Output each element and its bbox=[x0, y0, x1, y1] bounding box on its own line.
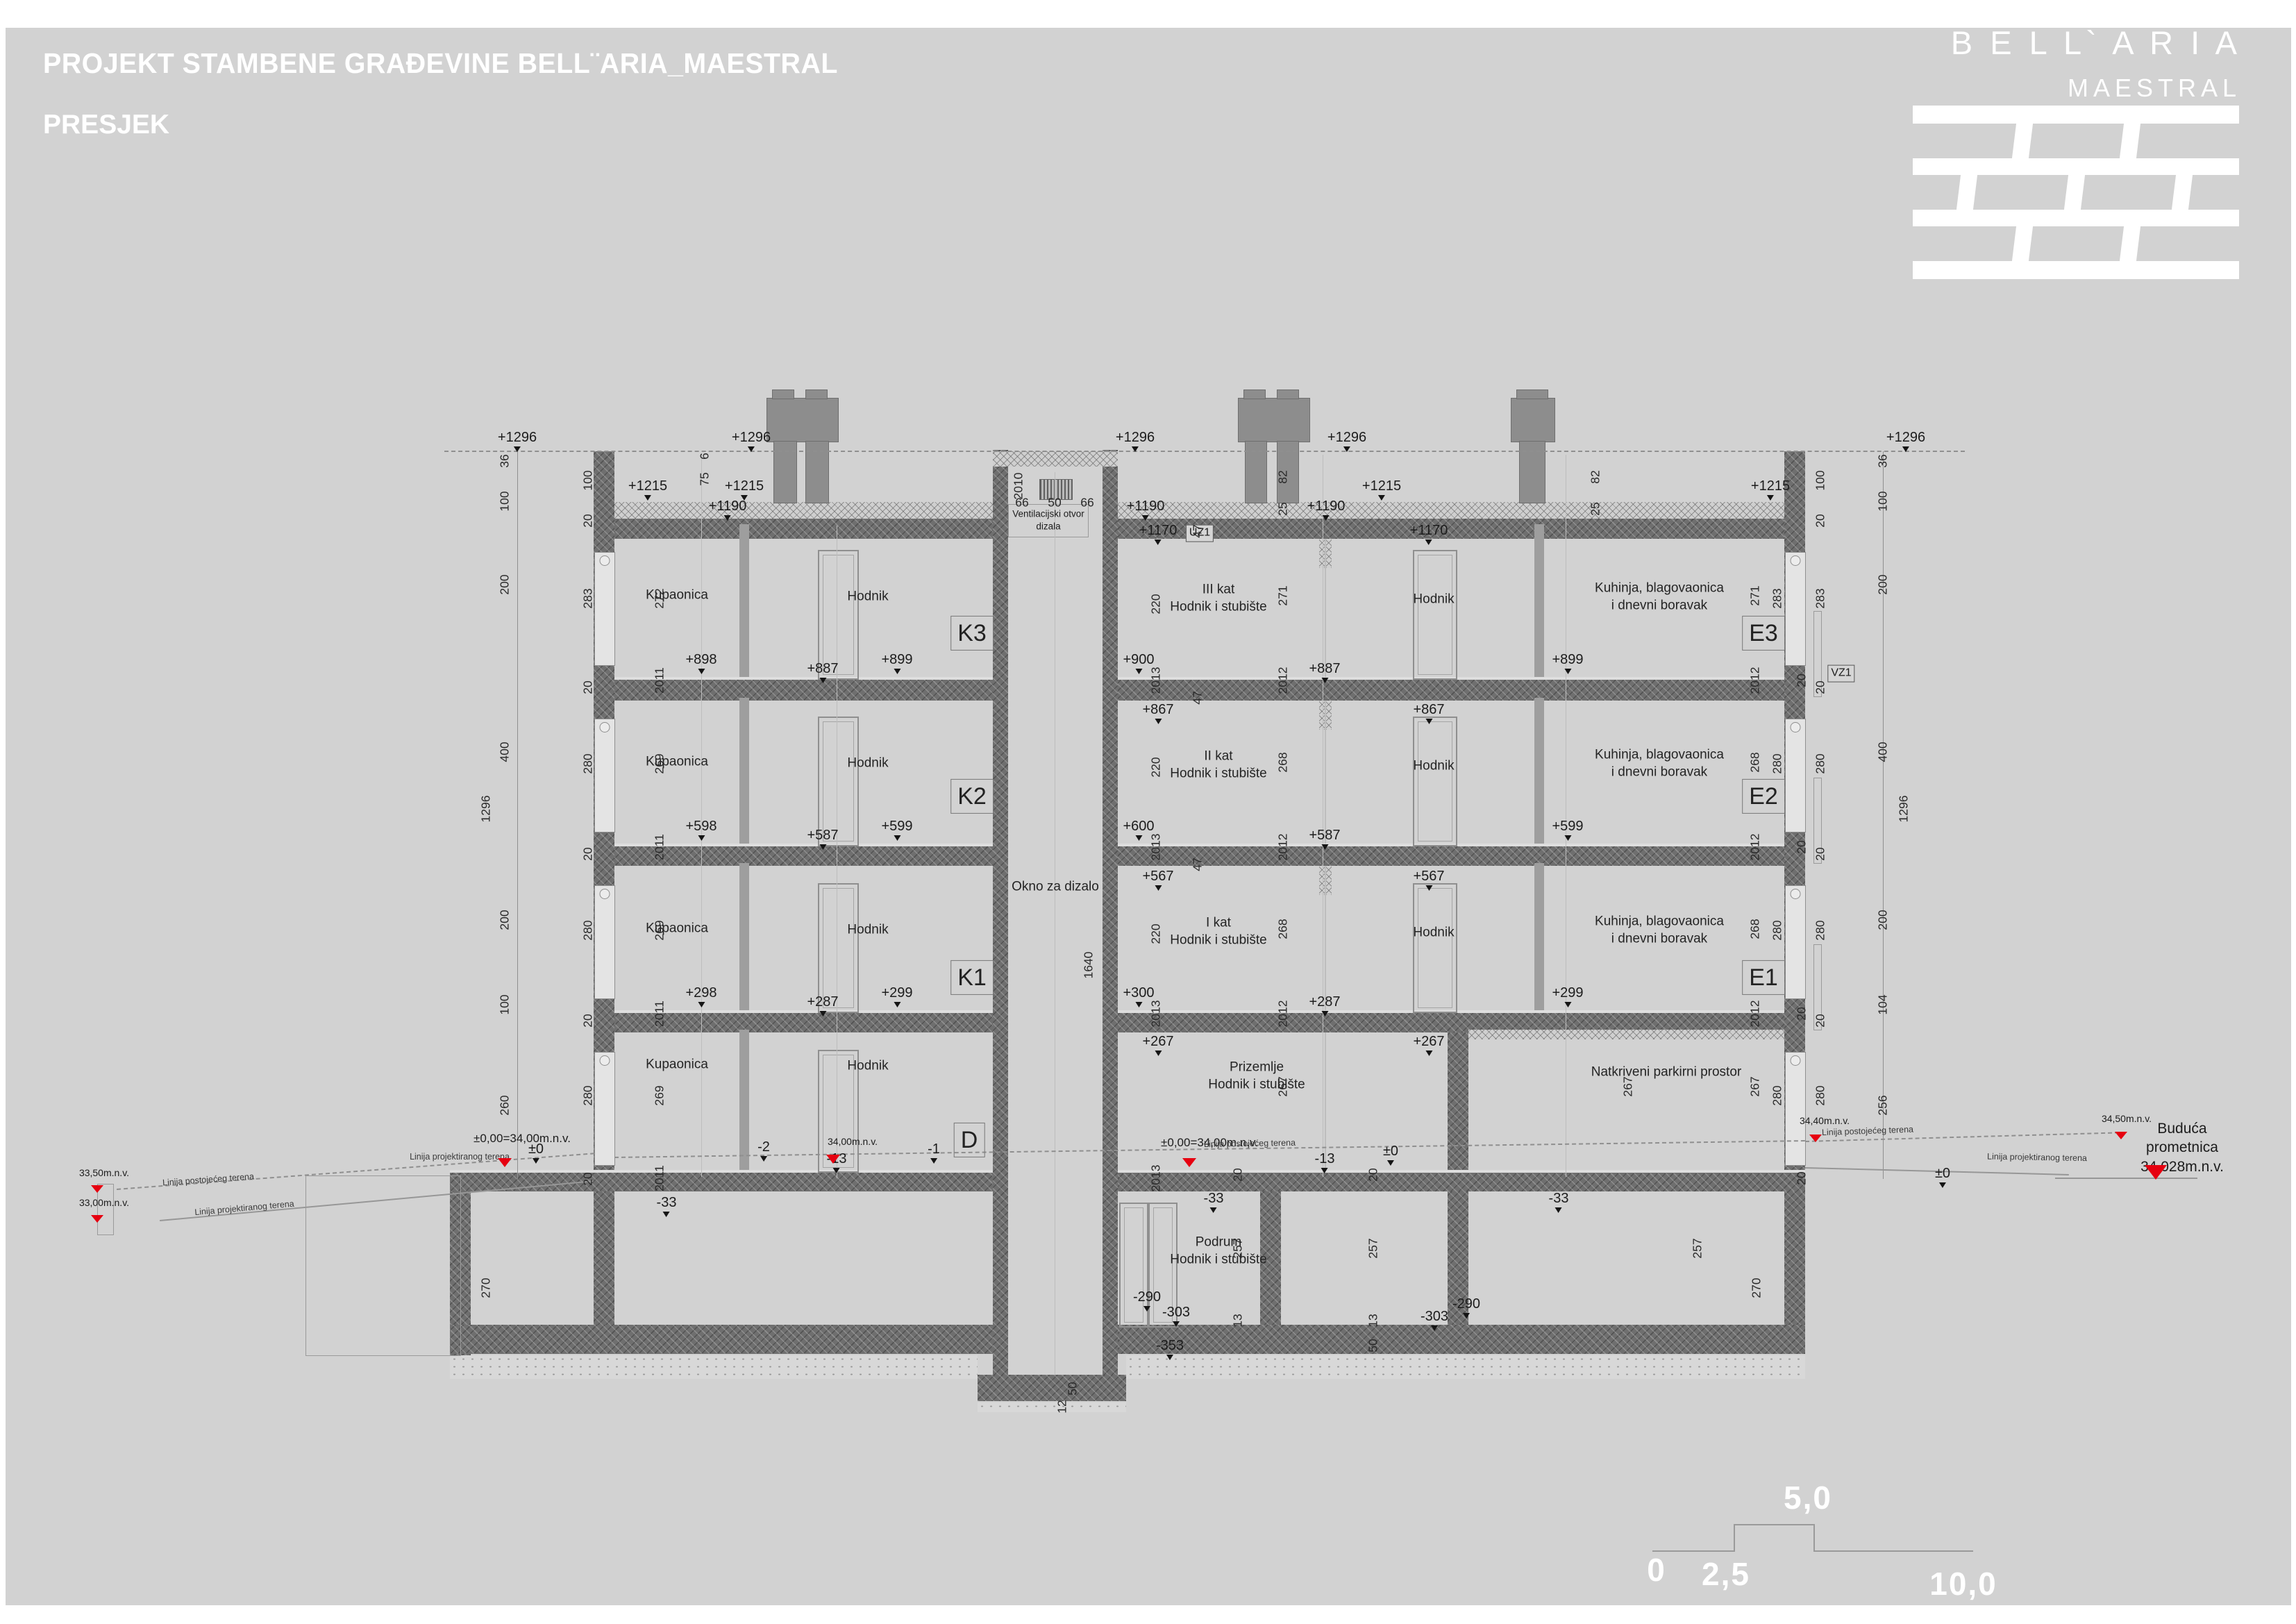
excavation-outline bbox=[305, 1175, 461, 1356]
section-tag: K3 bbox=[950, 616, 994, 651]
pillar bbox=[739, 863, 749, 1010]
dimension-label: 2012 bbox=[1275, 834, 1291, 861]
elevation-marker: -1 bbox=[928, 1140, 940, 1158]
room-label: Podrum Hodnik i stubište bbox=[1170, 1234, 1266, 1268]
brick-joint bbox=[2012, 226, 2033, 261]
ground-slab bbox=[450, 1170, 993, 1191]
chimney-top bbox=[1516, 390, 1548, 399]
elevation-marker: -33 bbox=[1549, 1189, 1569, 1207]
terrain-label: Linija postojećeg terena bbox=[1204, 1137, 1296, 1150]
room-label: Hodnik bbox=[847, 755, 888, 773]
benchmark-label: 33,50m.n.v. bbox=[79, 1166, 129, 1179]
elevation-marker: -303 bbox=[1421, 1307, 1448, 1325]
scale-bar-segment bbox=[1734, 1524, 1815, 1525]
elevation-marker: +598 bbox=[685, 817, 717, 835]
room-label: Kupaonica bbox=[646, 1057, 708, 1074]
door bbox=[1413, 550, 1457, 680]
elevation-marker: +567 bbox=[1142, 867, 1173, 885]
dimension-label: 268 bbox=[1748, 919, 1763, 939]
dimension-label: 66 bbox=[1080, 495, 1093, 511]
section-tag: K2 bbox=[950, 779, 994, 814]
scale-bar-segment bbox=[1734, 1524, 1735, 1552]
roof-insulation bbox=[1118, 502, 1784, 519]
chimney-top bbox=[1277, 390, 1299, 399]
dimension-label: 20 bbox=[1366, 1168, 1382, 1181]
dimension-label: 260 bbox=[497, 1095, 513, 1115]
dimension-label: 280 bbox=[1770, 1085, 1786, 1105]
dimension-label: 20 bbox=[1813, 847, 1829, 860]
vent-label: Ventilacijski otvor dizala bbox=[1012, 508, 1084, 532]
benchmark-red-marker bbox=[91, 1215, 103, 1223]
elevation-marker: +599 bbox=[1552, 817, 1583, 835]
dimension-label: 280 bbox=[580, 920, 596, 940]
dimension-label: 82 bbox=[1588, 470, 1604, 483]
dimension-label: 280 bbox=[1813, 1085, 1829, 1105]
dimension-label: 25 bbox=[1275, 502, 1291, 515]
elevation-marker: -303 bbox=[1162, 1303, 1190, 1321]
dimension-label: 75 bbox=[697, 472, 713, 485]
shaft-pit-slab bbox=[978, 1375, 1126, 1401]
brick-bar bbox=[1913, 106, 2239, 124]
scalebar-label: 10,0 bbox=[1929, 1564, 1997, 1605]
dimension-label: 280 bbox=[580, 1085, 596, 1105]
dimension-label: 20 bbox=[1794, 840, 1810, 853]
section-tag: D bbox=[954, 1123, 985, 1157]
elevation-marker: +1190 bbox=[1127, 497, 1165, 515]
parking-ceiling-insulation bbox=[1468, 1030, 1784, 1039]
dimension-label: 36 bbox=[497, 454, 513, 467]
logo-name: B E L L` A R I A bbox=[1951, 24, 2241, 62]
dimension-label: 271 bbox=[1748, 585, 1763, 605]
elevation-marker: +900 bbox=[1123, 651, 1154, 669]
room-label: Kuhinja, blagovaonica i dnevni boravak bbox=[1595, 746, 1724, 780]
dimension-label: 20 bbox=[580, 514, 596, 527]
dimension-label: 2012 bbox=[1748, 834, 1763, 861]
dimension-label: 257 bbox=[1690, 1238, 1706, 1258]
elevation-marker: -33 bbox=[657, 1194, 677, 1212]
elevation-marker: +300 bbox=[1123, 984, 1154, 1002]
dimension-label: 283 bbox=[1770, 588, 1786, 608]
dimension-label: 2013 bbox=[1148, 1001, 1164, 1028]
dimension-label: 268 bbox=[1275, 752, 1291, 772]
brick-bar bbox=[1913, 158, 2239, 175]
ref-tag: VZ1 bbox=[1827, 665, 1854, 683]
dimension-label: 257 bbox=[1230, 1238, 1246, 1258]
chimney-cap bbox=[1238, 398, 1310, 442]
dimension-label: 13 bbox=[1230, 1314, 1246, 1327]
elevation-marker: +287 bbox=[807, 993, 838, 1011]
dimension-label: 20 bbox=[1813, 680, 1829, 694]
elevation-marker: +587 bbox=[807, 826, 838, 844]
foundation-slab bbox=[1118, 1325, 1805, 1354]
page-title: PROJEKT STAMBENE GRAĐEVINE BELL¨ARIA_MAE… bbox=[43, 47, 838, 80]
window bbox=[594, 1052, 615, 1166]
elevation-marker: +599 bbox=[881, 817, 912, 835]
logo: B E L L` A R I A MAESTRAL bbox=[1902, 19, 2249, 297]
elevation-marker: +1170 bbox=[1139, 521, 1178, 539]
roof-insulation bbox=[614, 502, 993, 519]
gravel-layer bbox=[450, 1355, 978, 1379]
dimension-label: 280 bbox=[580, 753, 596, 773]
dimension-label: 267 bbox=[1748, 1076, 1763, 1096]
dimension-label: 66 bbox=[1015, 495, 1028, 511]
road-line bbox=[2055, 1178, 2197, 1179]
elevation-marker: ±0 bbox=[1935, 1164, 1950, 1182]
dimension-label: 1296 bbox=[1896, 796, 1912, 823]
dimension-label: 268 bbox=[1748, 752, 1763, 772]
window bbox=[594, 552, 615, 666]
room-label: Hodnik bbox=[1413, 925, 1454, 942]
dimension-label: 20 bbox=[580, 847, 596, 860]
window bbox=[1785, 552, 1806, 666]
dimension-label: 50 bbox=[1065, 1382, 1081, 1395]
scale-bar-segment bbox=[1813, 1550, 1973, 1552]
dimension-label: 20 bbox=[1230, 1168, 1246, 1181]
dimension-label: 104 bbox=[1875, 994, 1891, 1014]
dimension-label: 100 bbox=[1875, 491, 1891, 511]
elevation-marker: -13 bbox=[1315, 1150, 1335, 1168]
dimension-label: 20 bbox=[1813, 514, 1829, 527]
dimension-label: 200 bbox=[497, 910, 513, 930]
brick-joint bbox=[2120, 124, 2140, 158]
elevation-marker: +887 bbox=[1309, 660, 1340, 678]
elevation-marker: -290 bbox=[1133, 1288, 1161, 1306]
floor-slab bbox=[614, 1010, 993, 1032]
dimension-label: 20 bbox=[1794, 1007, 1810, 1020]
grid-line bbox=[1566, 455, 1566, 1177]
benchmark-red-marker bbox=[2145, 1165, 2167, 1180]
elevation-marker: +587 bbox=[1309, 826, 1340, 844]
roof-level-line bbox=[444, 451, 1965, 452]
dimension-label: 267 bbox=[1620, 1076, 1636, 1096]
elevation-marker: +267 bbox=[1142, 1032, 1173, 1050]
elevation-marker: +1215 bbox=[1362, 477, 1401, 495]
road-benchmark-label: Buduća prometnica 34,028m.n.v. bbox=[2125, 1119, 2239, 1176]
elevation-marker: +1170 bbox=[1410, 521, 1448, 539]
window bbox=[1785, 885, 1806, 999]
wall-parking bbox=[1448, 1030, 1468, 1172]
gravel-layer bbox=[978, 1403, 1126, 1412]
brick-bar bbox=[1913, 210, 2239, 226]
room-label: Natkriveni parkirni prostor bbox=[1591, 1064, 1741, 1082]
elevation-marker: -353 bbox=[1156, 1337, 1184, 1355]
dimension-label: 220 bbox=[1148, 594, 1164, 614]
room-label: I kat Hodnik i stubište bbox=[1170, 914, 1266, 948]
section-tag: K1 bbox=[950, 960, 994, 995]
brick-joint bbox=[2120, 226, 2140, 261]
dimension-label: 2011 bbox=[652, 1001, 668, 1027]
elevation-marker: +1215 bbox=[725, 477, 764, 495]
dimension-label: 283 bbox=[1813, 588, 1829, 608]
pillar bbox=[739, 698, 749, 844]
scalebar-label: 0 bbox=[1647, 1550, 1666, 1591]
dimension-label: 269 bbox=[652, 753, 668, 773]
elevation-marker: +867 bbox=[1413, 701, 1444, 719]
elevation-marker: +899 bbox=[881, 651, 912, 669]
blueprint-page: PROJEKT STAMBENE GRAĐEVINE BELL¨ARIA_MAE… bbox=[0, 0, 2296, 1624]
elevation-marker: +267 bbox=[1413, 1032, 1444, 1050]
logo-subname: MAESTRAL bbox=[2068, 74, 2241, 103]
elevation-marker: +1296 bbox=[732, 428, 771, 446]
pillar bbox=[739, 524, 749, 677]
dimension-label: 20 bbox=[1794, 1171, 1810, 1184]
dimension-label: 12 bbox=[1055, 1400, 1071, 1413]
room-label: Hodnik bbox=[1413, 758, 1454, 776]
dimension-label: 2012 bbox=[1748, 1001, 1763, 1028]
pillar bbox=[739, 1030, 749, 1170]
dimension-label: 257 bbox=[1366, 1238, 1382, 1258]
wall-basement bbox=[594, 1189, 614, 1325]
elevation-marker: +899 bbox=[1552, 651, 1583, 669]
elevation-marker: +1190 bbox=[1307, 497, 1346, 515]
grid-line bbox=[1323, 455, 1323, 1177]
dimension-label: 20 bbox=[580, 1014, 596, 1027]
dimension-label: 2012 bbox=[1275, 667, 1291, 694]
elevation-marker: +887 bbox=[807, 660, 838, 678]
dimension-label: 47 bbox=[1190, 691, 1206, 704]
brick-joint bbox=[1956, 175, 1977, 210]
room-label: Hodnik bbox=[847, 589, 888, 606]
dimension-label: 2013 bbox=[1148, 834, 1164, 861]
dimension-label: 220 bbox=[1148, 923, 1164, 944]
roof-slab bbox=[1118, 519, 1784, 539]
shaft-head-slab bbox=[993, 451, 1118, 467]
dimension-label: 13 bbox=[1366, 1314, 1382, 1327]
dimension-label: 100 bbox=[497, 491, 513, 511]
dimension-label: 272 bbox=[652, 588, 668, 608]
door bbox=[1413, 717, 1457, 846]
elevation-marker: +299 bbox=[1552, 984, 1583, 1002]
dimension-label: 270 bbox=[1749, 1278, 1765, 1298]
terrain-label: Linija projektiranog terena bbox=[410, 1151, 510, 1162]
elevation-marker: +299 bbox=[881, 984, 912, 1002]
section-tag: E1 bbox=[1742, 960, 1785, 995]
dimension-label: 280 bbox=[1770, 920, 1786, 940]
scalebar-label: 5,0 bbox=[1784, 1477, 1832, 1519]
chimney-cap bbox=[766, 398, 839, 442]
benchmark-red-marker bbox=[498, 1158, 512, 1167]
room-label: Hodnik bbox=[847, 922, 888, 939]
room-label: II kat Hodnik i stubište bbox=[1170, 748, 1266, 782]
elevation-marker: +1296 bbox=[1327, 428, 1366, 446]
benchmark-red-marker bbox=[1809, 1135, 1822, 1142]
dimension-label: 200 bbox=[497, 574, 513, 594]
elevation-marker: +600 bbox=[1123, 817, 1154, 835]
elevation-marker: +1296 bbox=[1116, 428, 1155, 446]
elevation-marker: +1296 bbox=[1886, 428, 1925, 446]
window bbox=[594, 719, 615, 832]
dimension-label: 82 bbox=[1275, 470, 1291, 483]
room-label: Hodnik bbox=[1413, 592, 1454, 609]
floor-slab bbox=[1118, 844, 1784, 866]
dimension-label: 1296 bbox=[478, 796, 494, 823]
room-label: Kuhinja, blagovaonica i dnevni boravak bbox=[1595, 580, 1724, 614]
gravel-layer bbox=[1126, 1355, 1805, 1379]
dimension-label: 20 bbox=[580, 1172, 596, 1185]
wall-basement-right bbox=[1784, 1189, 1805, 1325]
room-label: Kuhinja, blagovaonica i dnevni boravak bbox=[1595, 913, 1724, 947]
dimension-label: 100 bbox=[497, 994, 513, 1014]
scalebar-label: 2,5 bbox=[1702, 1554, 1750, 1596]
dimension-label: 268 bbox=[1275, 919, 1291, 939]
pillar bbox=[1534, 863, 1544, 1010]
wall-shaft-right bbox=[1103, 450, 1118, 1401]
benchmark-label: ±0,00=34,00m.n.v. bbox=[474, 1131, 571, 1146]
roof-slab bbox=[614, 519, 993, 539]
chimney-cap bbox=[1511, 398, 1555, 442]
ground-slab bbox=[1118, 1170, 1805, 1191]
brick-joint bbox=[2172, 175, 2193, 210]
elevation-marker: -290 bbox=[1452, 1295, 1480, 1313]
elevation-marker: -33 bbox=[1204, 1189, 1224, 1207]
elevation-marker: +298 bbox=[685, 984, 717, 1002]
room-label: III kat Hodnik i stubište bbox=[1170, 581, 1266, 615]
terrain-label: Linija projektiranog terena bbox=[1987, 1151, 2087, 1164]
benchmark-label: 34,40m.n.v. bbox=[1800, 1114, 1850, 1127]
dimension-label: 2011 bbox=[652, 834, 668, 860]
dimension-label: 269 bbox=[652, 920, 668, 940]
elevation-marker: ±0 bbox=[1383, 1142, 1398, 1160]
chimney-top bbox=[805, 390, 828, 399]
room-label: Hodnik bbox=[847, 1058, 888, 1075]
floor-slab bbox=[614, 844, 993, 866]
dimension-label: 2011 bbox=[652, 1165, 668, 1191]
brick-joint bbox=[2012, 124, 2033, 158]
dimension-chain-line bbox=[1883, 451, 1884, 1179]
shaft-centerline bbox=[1055, 472, 1055, 1375]
dimension-label: 47 bbox=[1190, 857, 1206, 871]
dimension-label: 2012 bbox=[1275, 1001, 1291, 1028]
dimension-label: 25 bbox=[1588, 502, 1604, 515]
dimension-label: 2013 bbox=[1148, 1165, 1164, 1192]
scale-bar-segment bbox=[1813, 1524, 1815, 1552]
benchmark-red-marker bbox=[826, 1155, 840, 1164]
elevation-marker: +1215 bbox=[628, 477, 667, 495]
chimney-top bbox=[772, 390, 794, 399]
dimension-label: 271 bbox=[1275, 585, 1291, 605]
dimension-label: 20 bbox=[1794, 673, 1810, 687]
dimension-label: 256 bbox=[1875, 1095, 1891, 1115]
floor-slab bbox=[1118, 677, 1784, 701]
dimension-label: 200 bbox=[1875, 910, 1891, 930]
dimension-label: 220 bbox=[1148, 757, 1164, 777]
dimension-label: 270 bbox=[478, 1278, 494, 1298]
elevation-marker: +867 bbox=[1142, 701, 1173, 719]
benchmark-red-marker bbox=[1182, 1158, 1196, 1167]
brick-joint bbox=[2064, 175, 2085, 210]
pillar bbox=[1534, 524, 1544, 677]
chimney-top bbox=[1243, 390, 1266, 399]
dimension-chain-line bbox=[517, 451, 518, 1179]
floor-slab bbox=[614, 677, 993, 701]
window bbox=[1785, 1052, 1806, 1166]
pillar bbox=[1534, 698, 1544, 844]
dimension-label: 50 bbox=[1048, 495, 1061, 511]
elevation-marker: +567 bbox=[1413, 867, 1444, 885]
dimension-label: 269 bbox=[652, 1085, 668, 1105]
grid-line bbox=[837, 526, 837, 1178]
section-tag: E3 bbox=[1742, 616, 1785, 651]
benchmark-label: 34,00m.n.v. bbox=[828, 1135, 878, 1148]
dimension-label: 280 bbox=[1813, 920, 1829, 940]
dimension-label: 20 bbox=[580, 680, 596, 694]
dimension-label: 47 bbox=[1190, 524, 1206, 537]
room-label: Okno za dizalo bbox=[1012, 879, 1099, 896]
elevation-marker: +1190 bbox=[709, 497, 747, 515]
benchmark-red-marker bbox=[2115, 1132, 2127, 1139]
foundation-slab bbox=[450, 1325, 993, 1354]
dimension-label: 2011 bbox=[652, 667, 668, 694]
elevation-marker: +1215 bbox=[1751, 477, 1790, 495]
dimension-label: 6 bbox=[697, 453, 713, 460]
dimension-label: 36 bbox=[1875, 454, 1891, 467]
elevation-marker: +1296 bbox=[498, 428, 537, 446]
dimension-label: 100 bbox=[1813, 470, 1829, 490]
brick-bar bbox=[1913, 261, 2239, 279]
dimension-label: 280 bbox=[1770, 753, 1786, 773]
elevation-marker: +898 bbox=[685, 651, 717, 669]
page-subtitle: PRESJEK bbox=[43, 110, 169, 140]
dimension-label: 2012 bbox=[1748, 667, 1763, 694]
elevation-marker: +287 bbox=[1309, 993, 1340, 1011]
dimension-label: 400 bbox=[1875, 742, 1891, 762]
door bbox=[1413, 883, 1457, 1013]
dimension-label: 267 bbox=[1275, 1076, 1291, 1096]
dimension-label: 100 bbox=[580, 470, 596, 490]
wall-shaft-left bbox=[993, 450, 1008, 1401]
window bbox=[1785, 719, 1806, 832]
dimension-label: 200 bbox=[1875, 574, 1891, 594]
dimension-label: 50 bbox=[1366, 1339, 1382, 1352]
dimension-label: 2013 bbox=[1148, 667, 1164, 694]
benchmark-red-marker bbox=[91, 1185, 103, 1193]
dimension-label: 400 bbox=[497, 742, 513, 762]
dimension-label: 20 bbox=[1813, 1014, 1829, 1027]
dimension-label: 283 bbox=[580, 588, 596, 608]
dimension-label: 280 bbox=[1813, 753, 1829, 773]
section-tag: E2 bbox=[1742, 779, 1785, 814]
elevation-marker: -2 bbox=[757, 1138, 770, 1156]
window bbox=[594, 885, 615, 999]
benchmark-label: 33,00m.n.v. bbox=[79, 1196, 129, 1209]
dimension-label: 1640 bbox=[1081, 952, 1097, 979]
